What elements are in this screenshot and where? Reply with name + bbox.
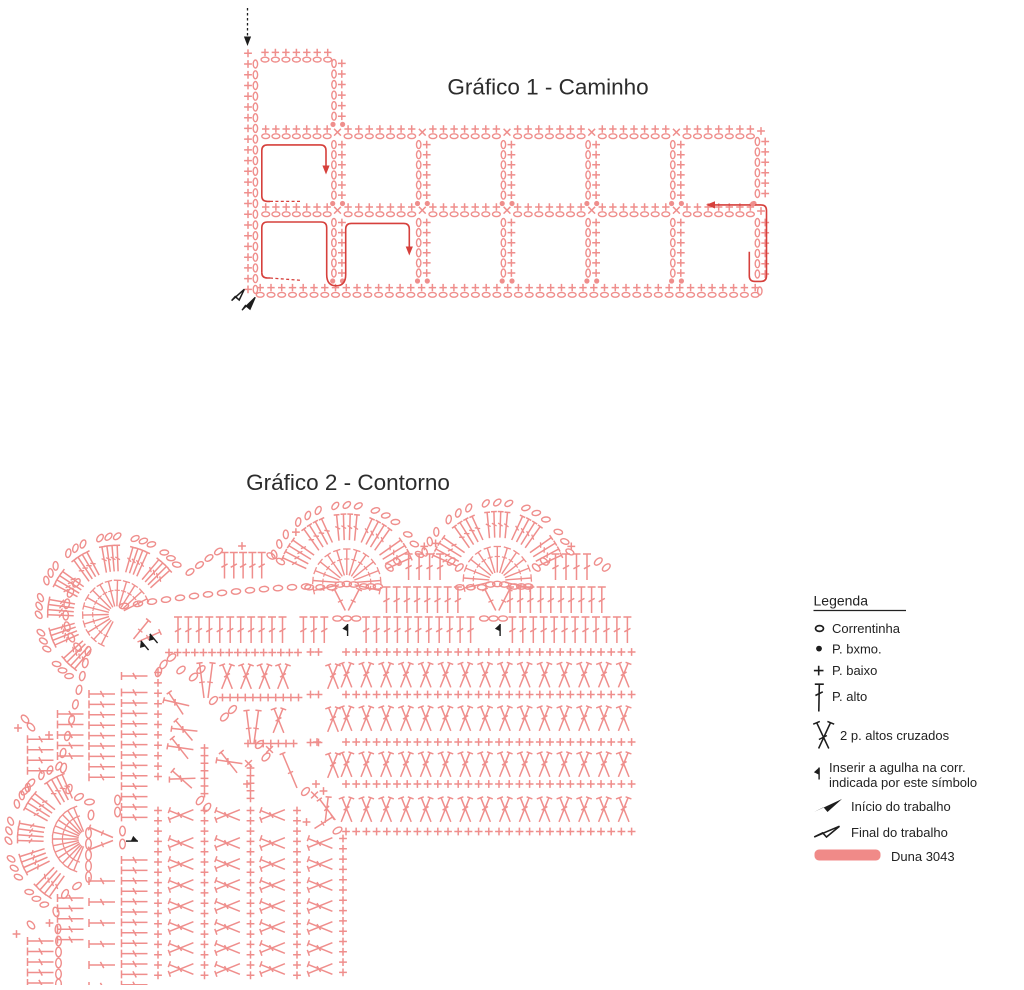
svg-text:2 p. altos cruzados: 2 p. altos cruzados bbox=[840, 728, 950, 743]
svg-text:indicada por este símbolo: indicada por este símbolo bbox=[829, 775, 977, 790]
svg-text:Correntinha: Correntinha bbox=[832, 621, 901, 636]
svg-text:Gráfico 1 - Caminho: Gráfico 1 - Caminho bbox=[447, 75, 648, 100]
svg-text:Final do trabalho: Final do trabalho bbox=[851, 825, 948, 840]
svg-text:Inserir a agulha na corr.: Inserir a agulha na corr. bbox=[829, 760, 966, 775]
svg-text:Legenda: Legenda bbox=[814, 593, 869, 609]
svg-text:Início do trabalho: Início do trabalho bbox=[851, 799, 951, 814]
svg-text:Gráfico 2 - Contorno: Gráfico 2 - Contorno bbox=[246, 470, 450, 495]
svg-text:Duna 3043: Duna 3043 bbox=[891, 849, 955, 864]
svg-text:P. bxmo.: P. bxmo. bbox=[832, 642, 882, 657]
svg-text:P. baixo: P. baixo bbox=[832, 663, 877, 678]
svg-text:P. alto: P. alto bbox=[832, 689, 867, 704]
